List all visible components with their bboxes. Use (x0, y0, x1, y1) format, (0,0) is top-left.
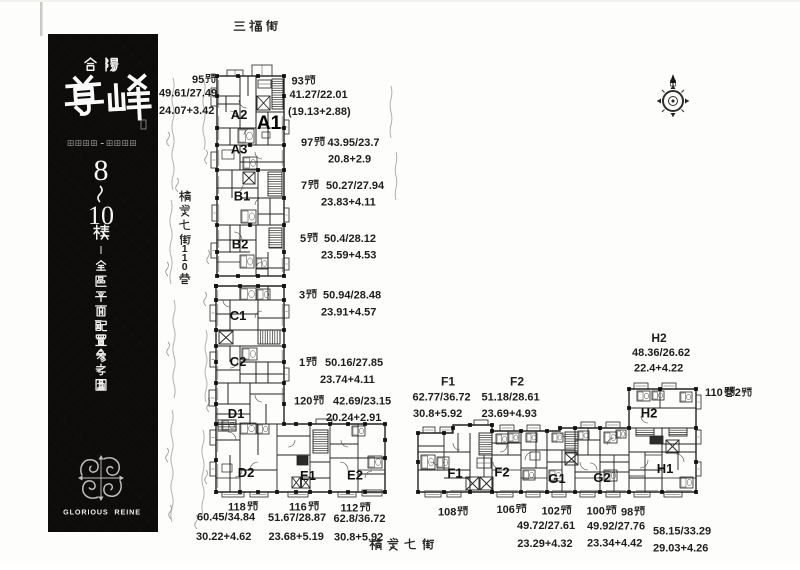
svg-text:D1: D1 (228, 406, 245, 421)
svg-text:29.03+4.26: 29.03+4.26 (653, 543, 708, 555)
svg-text:110: 110 (705, 387, 723, 399)
svg-text:H2: H2 (651, 331, 667, 345)
svg-text:23.69+4.93: 23.69+4.93 (482, 408, 537, 420)
svg-text:1: 1 (299, 357, 305, 369)
svg-text:22.4+4.22: 22.4+4.22 (634, 363, 683, 375)
svg-text:20.24+2.91: 20.24+2.91 (326, 412, 381, 424)
svg-text:108: 108 (438, 507, 456, 519)
svg-text:(19.13+2.88): (19.13+2.88) (288, 106, 351, 118)
svg-text:H1: H1 (657, 461, 674, 476)
svg-text:100: 100 (587, 506, 605, 518)
svg-text:20.8+2.9: 20.8+2.9 (328, 154, 371, 166)
svg-text:93: 93 (292, 76, 304, 88)
svg-text:10: 10 (88, 201, 114, 230)
svg-text:C2: C2 (230, 354, 247, 369)
svg-text:A3: A3 (231, 142, 248, 157)
svg-text:23.91+4.57: 23.91+4.57 (321, 307, 376, 319)
svg-text:A1: A1 (257, 113, 282, 134)
svg-text:62.77/36.72: 62.77/36.72 (413, 392, 471, 404)
svg-text:G1: G1 (548, 471, 565, 486)
svg-text:GLORIOUS REINE: GLORIOUS REINE (63, 508, 141, 517)
svg-text:23.83+4.11: 23.83+4.11 (321, 197, 376, 209)
svg-text:24.07+3.42: 24.07+3.42 (159, 105, 214, 117)
svg-text:F2: F2 (494, 465, 509, 480)
svg-text:23.34+4.42: 23.34+4.42 (587, 537, 642, 549)
svg-text:58.15/33.29: 58.15/33.29 (653, 526, 711, 538)
svg-text:F2: F2 (510, 375, 524, 389)
svg-text:23.29+4.32: 23.29+4.32 (517, 538, 572, 550)
svg-text:60.45/34.84: 60.45/34.84 (197, 512, 256, 524)
svg-text:51.18/28.61: 51.18/28.61 (482, 392, 540, 404)
svg-text:120: 120 (294, 396, 312, 408)
svg-text:7: 7 (301, 180, 307, 192)
svg-text:A2: A2 (231, 107, 248, 122)
svg-text:5: 5 (300, 233, 306, 245)
svg-text:23.74+4.11: 23.74+4.11 (320, 374, 375, 386)
svg-text:E1: E1 (300, 468, 316, 483)
svg-text:50.4/28.12: 50.4/28.12 (324, 233, 376, 245)
svg-text:B1: B1 (234, 189, 251, 204)
svg-text:G2: G2 (593, 470, 610, 485)
svg-text:95: 95 (192, 74, 204, 86)
svg-text:98: 98 (621, 507, 633, 519)
svg-text:50.16/27.85: 50.16/27.85 (325, 357, 383, 369)
svg-text:106: 106 (497, 504, 515, 516)
svg-text:48.36/26.62: 48.36/26.62 (632, 347, 690, 359)
svg-text:102: 102 (542, 506, 560, 518)
svg-text:51.67/28.87: 51.67/28.87 (268, 512, 326, 524)
svg-text:43.95/23.7: 43.95/23.7 (328, 137, 380, 149)
svg-text:E2: E2 (347, 468, 363, 483)
svg-text:C1: C1 (230, 308, 247, 323)
svg-text:42.69/23.15: 42.69/23.15 (333, 396, 391, 408)
svg-text:23.59+4.53: 23.59+4.53 (321, 250, 376, 262)
svg-text:97: 97 (301, 137, 313, 149)
svg-text:30.22+4.62: 30.22+4.62 (196, 531, 251, 543)
svg-text:41.27/22.01: 41.27/22.01 (290, 89, 348, 101)
svg-text:49.92/27.76: 49.92/27.76 (587, 521, 645, 533)
svg-text:3: 3 (299, 290, 305, 302)
svg-text:30.8+5.92: 30.8+5.92 (334, 532, 383, 544)
svg-text:8: 8 (94, 154, 109, 187)
svg-text:30.8+5.92: 30.8+5.92 (413, 408, 462, 420)
svg-text:F1: F1 (447, 466, 462, 481)
svg-text:B2: B2 (232, 237, 249, 252)
svg-text:49.72/27.61: 49.72/27.61 (517, 520, 575, 532)
svg-text:49.61/27.49: 49.61/27.49 (159, 88, 217, 100)
svg-text:2: 2 (735, 387, 741, 399)
svg-text:D2: D2 (238, 465, 255, 480)
svg-text:23.68+5.19: 23.68+5.19 (269, 531, 324, 543)
svg-text:50.27/27.94: 50.27/27.94 (326, 180, 385, 192)
svg-text:F1: F1 (441, 375, 455, 389)
svg-text:0: 0 (182, 261, 188, 273)
svg-text:50.94/28.48: 50.94/28.48 (323, 290, 381, 302)
svg-text:H2: H2 (641, 406, 658, 421)
svg-text:62.8/36.72: 62.8/36.72 (334, 513, 386, 525)
